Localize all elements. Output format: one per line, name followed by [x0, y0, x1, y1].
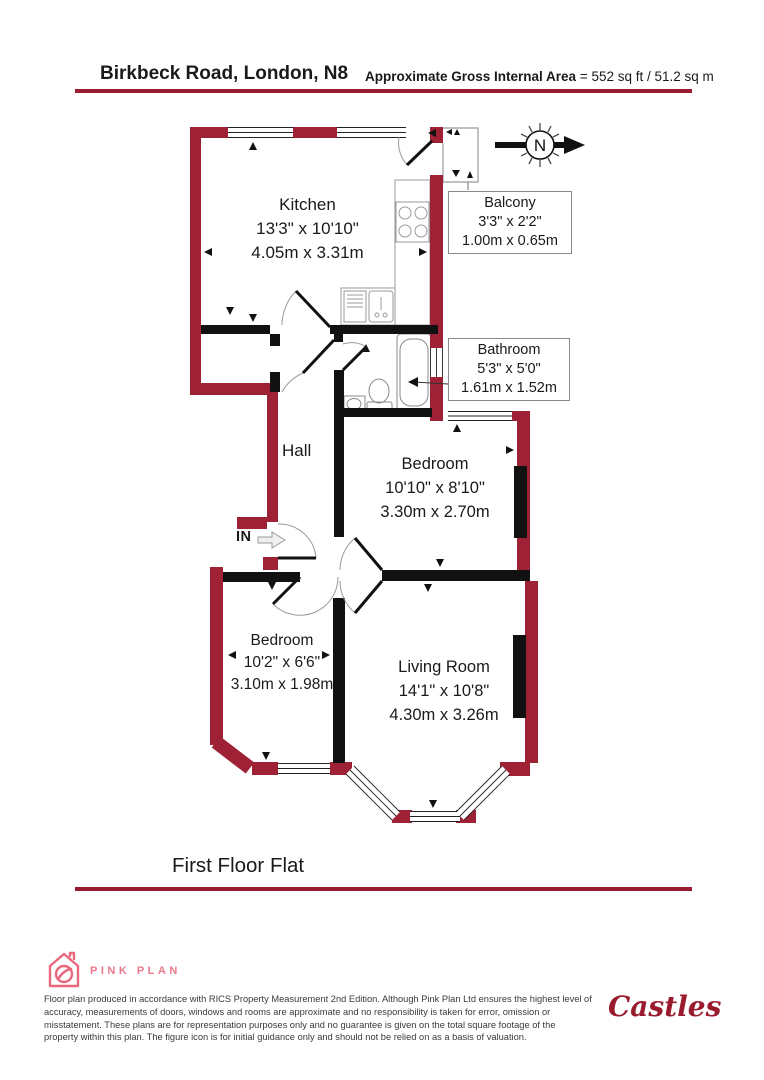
living-room-name: Living Room [350, 655, 538, 679]
bathroom-label-box: Bathroom 5'3" x 5'0" 1.61m x 1.52m [448, 338, 570, 401]
balcony-name: Balcony [453, 194, 567, 213]
hall-label: Hall [282, 441, 311, 461]
entrance-arrow-icon [258, 532, 285, 548]
bathroom-metric: 1.61m x 1.52m [453, 379, 565, 398]
kitchen-imperial: 13'3" x 10'10" [200, 217, 415, 241]
bedroom1-imperial: 10'10" x 8'10" [345, 476, 525, 500]
balcony-label-box: Balcony 3'3" x 2'2" 1.00m x 0.65m [448, 191, 572, 254]
kitchen-label: Kitchen 13'3" x 10'10" 4.05m x 3.31m [200, 193, 415, 265]
living-room-imperial: 14'1" x 10'8" [350, 679, 538, 703]
castles-logo: Castles [608, 990, 721, 1023]
bedroom2-name: Bedroom [196, 630, 368, 652]
bathroom-fixtures-icon [344, 334, 431, 413]
bedroom1-label: Bedroom 10'10" x 8'10" 3.30m x 2.70m [345, 452, 525, 524]
floorplan-drawing: N [0, 0, 764, 1080]
pink-plan-brand: PINK PLAN [90, 965, 181, 977]
bedroom2-metric: 3.10m x 1.98m [196, 674, 368, 696]
balcony-imperial: 3'3" x 2'2" [453, 213, 567, 232]
floor-title: First Floor Flat [172, 854, 304, 878]
entrance-label: IN [236, 529, 252, 545]
bedroom1-metric: 3.30m x 2.70m [345, 500, 525, 524]
bedroom2-label: Bedroom 10'2" x 6'6" 3.10m x 1.98m [196, 630, 368, 696]
balcony-metric: 1.00m x 0.65m [453, 232, 567, 251]
bathroom-imperial: 5'3" x 5'0" [453, 360, 565, 379]
bathroom-name: Bathroom [453, 341, 565, 360]
kitchen-metric: 4.05m x 3.31m [200, 241, 415, 265]
north-compass-icon: N [495, 123, 585, 167]
kitchen-name: Kitchen [200, 193, 415, 217]
living-room-metric: 4.30m x 3.26m [350, 703, 538, 727]
floorplan-page: Birkbeck Road, London, N8 Approximate Gr… [0, 0, 764, 1080]
living-room-label: Living Room 14'1" x 10'8" 4.30m x 3.26m [350, 655, 538, 727]
disclaimer-text: Floor plan produced in accordance with R… [44, 993, 592, 1044]
compass-north-label: N [534, 136, 546, 155]
bedroom1-name: Bedroom [345, 452, 525, 476]
footer-divider [75, 887, 692, 891]
pink-plan-logo-icon [46, 950, 82, 992]
bedroom2-imperial: 10'2" x 6'6" [196, 652, 368, 674]
